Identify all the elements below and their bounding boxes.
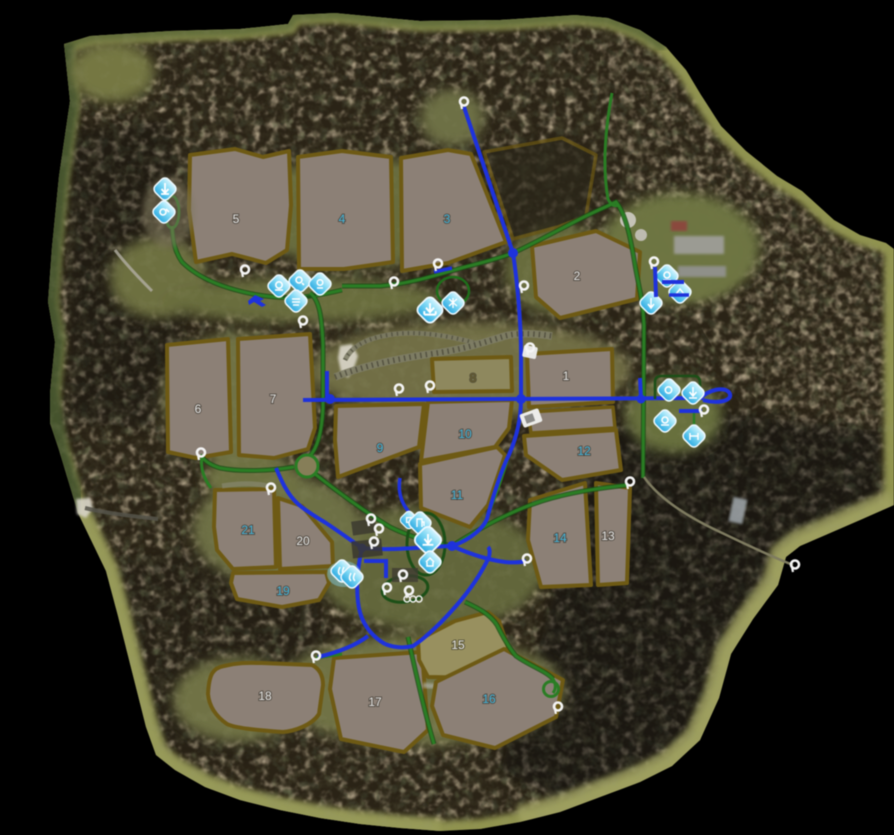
svg-text:7: 7 [270, 392, 277, 406]
svg-text:8: 8 [470, 371, 477, 385]
svg-text:18: 18 [258, 689, 272, 703]
svg-text:10: 10 [458, 427, 472, 441]
svg-text:16: 16 [482, 692, 496, 706]
svg-text:3: 3 [444, 212, 451, 226]
svg-text:5: 5 [233, 212, 240, 226]
svg-text:6: 6 [195, 402, 202, 416]
svg-text:12: 12 [577, 444, 591, 458]
svg-text:9: 9 [377, 441, 384, 455]
svg-text:4: 4 [339, 212, 346, 226]
svg-text:15: 15 [451, 638, 465, 652]
svg-text:2: 2 [574, 269, 581, 283]
svg-text:21: 21 [241, 523, 255, 537]
svg-text:13: 13 [601, 529, 615, 543]
svg-text:17: 17 [368, 695, 382, 709]
svg-text:11: 11 [451, 488, 464, 502]
svg-text:19: 19 [276, 584, 290, 598]
svg-text:14: 14 [553, 531, 567, 545]
svg-text:20: 20 [296, 534, 310, 548]
svg-text:1: 1 [563, 369, 570, 383]
